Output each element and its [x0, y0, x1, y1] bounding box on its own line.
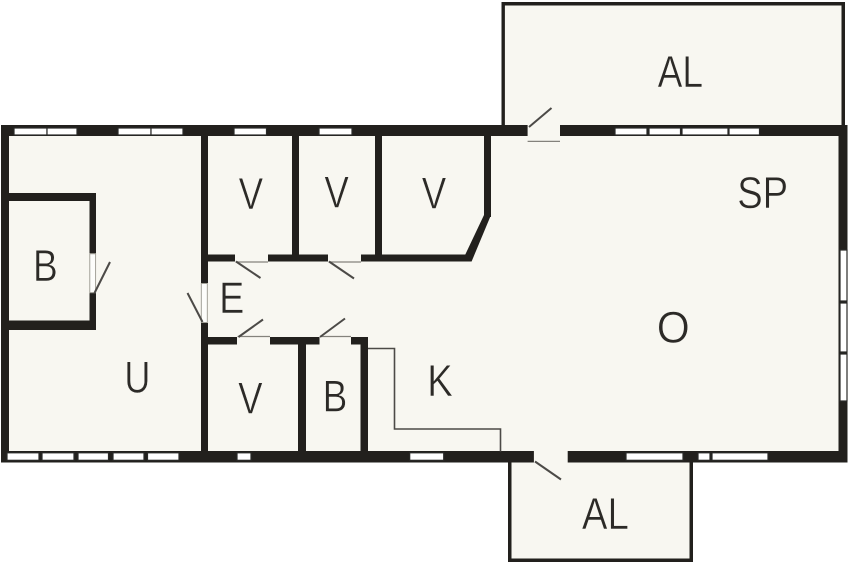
- svg-text:SP: SP: [737, 169, 788, 218]
- svg-text:K: K: [427, 357, 453, 406]
- svg-text:AL: AL: [582, 490, 629, 539]
- svg-text:B: B: [33, 242, 58, 291]
- svg-text:U: U: [124, 354, 150, 403]
- svg-text:E: E: [219, 274, 244, 323]
- svg-text:V: V: [239, 170, 264, 219]
- svg-text:O: O: [657, 304, 690, 353]
- svg-text:B: B: [323, 373, 348, 422]
- svg-text:V: V: [324, 169, 349, 218]
- svg-text:V: V: [238, 375, 263, 424]
- svg-text:AL: AL: [658, 48, 704, 97]
- svg-text:V: V: [422, 170, 447, 219]
